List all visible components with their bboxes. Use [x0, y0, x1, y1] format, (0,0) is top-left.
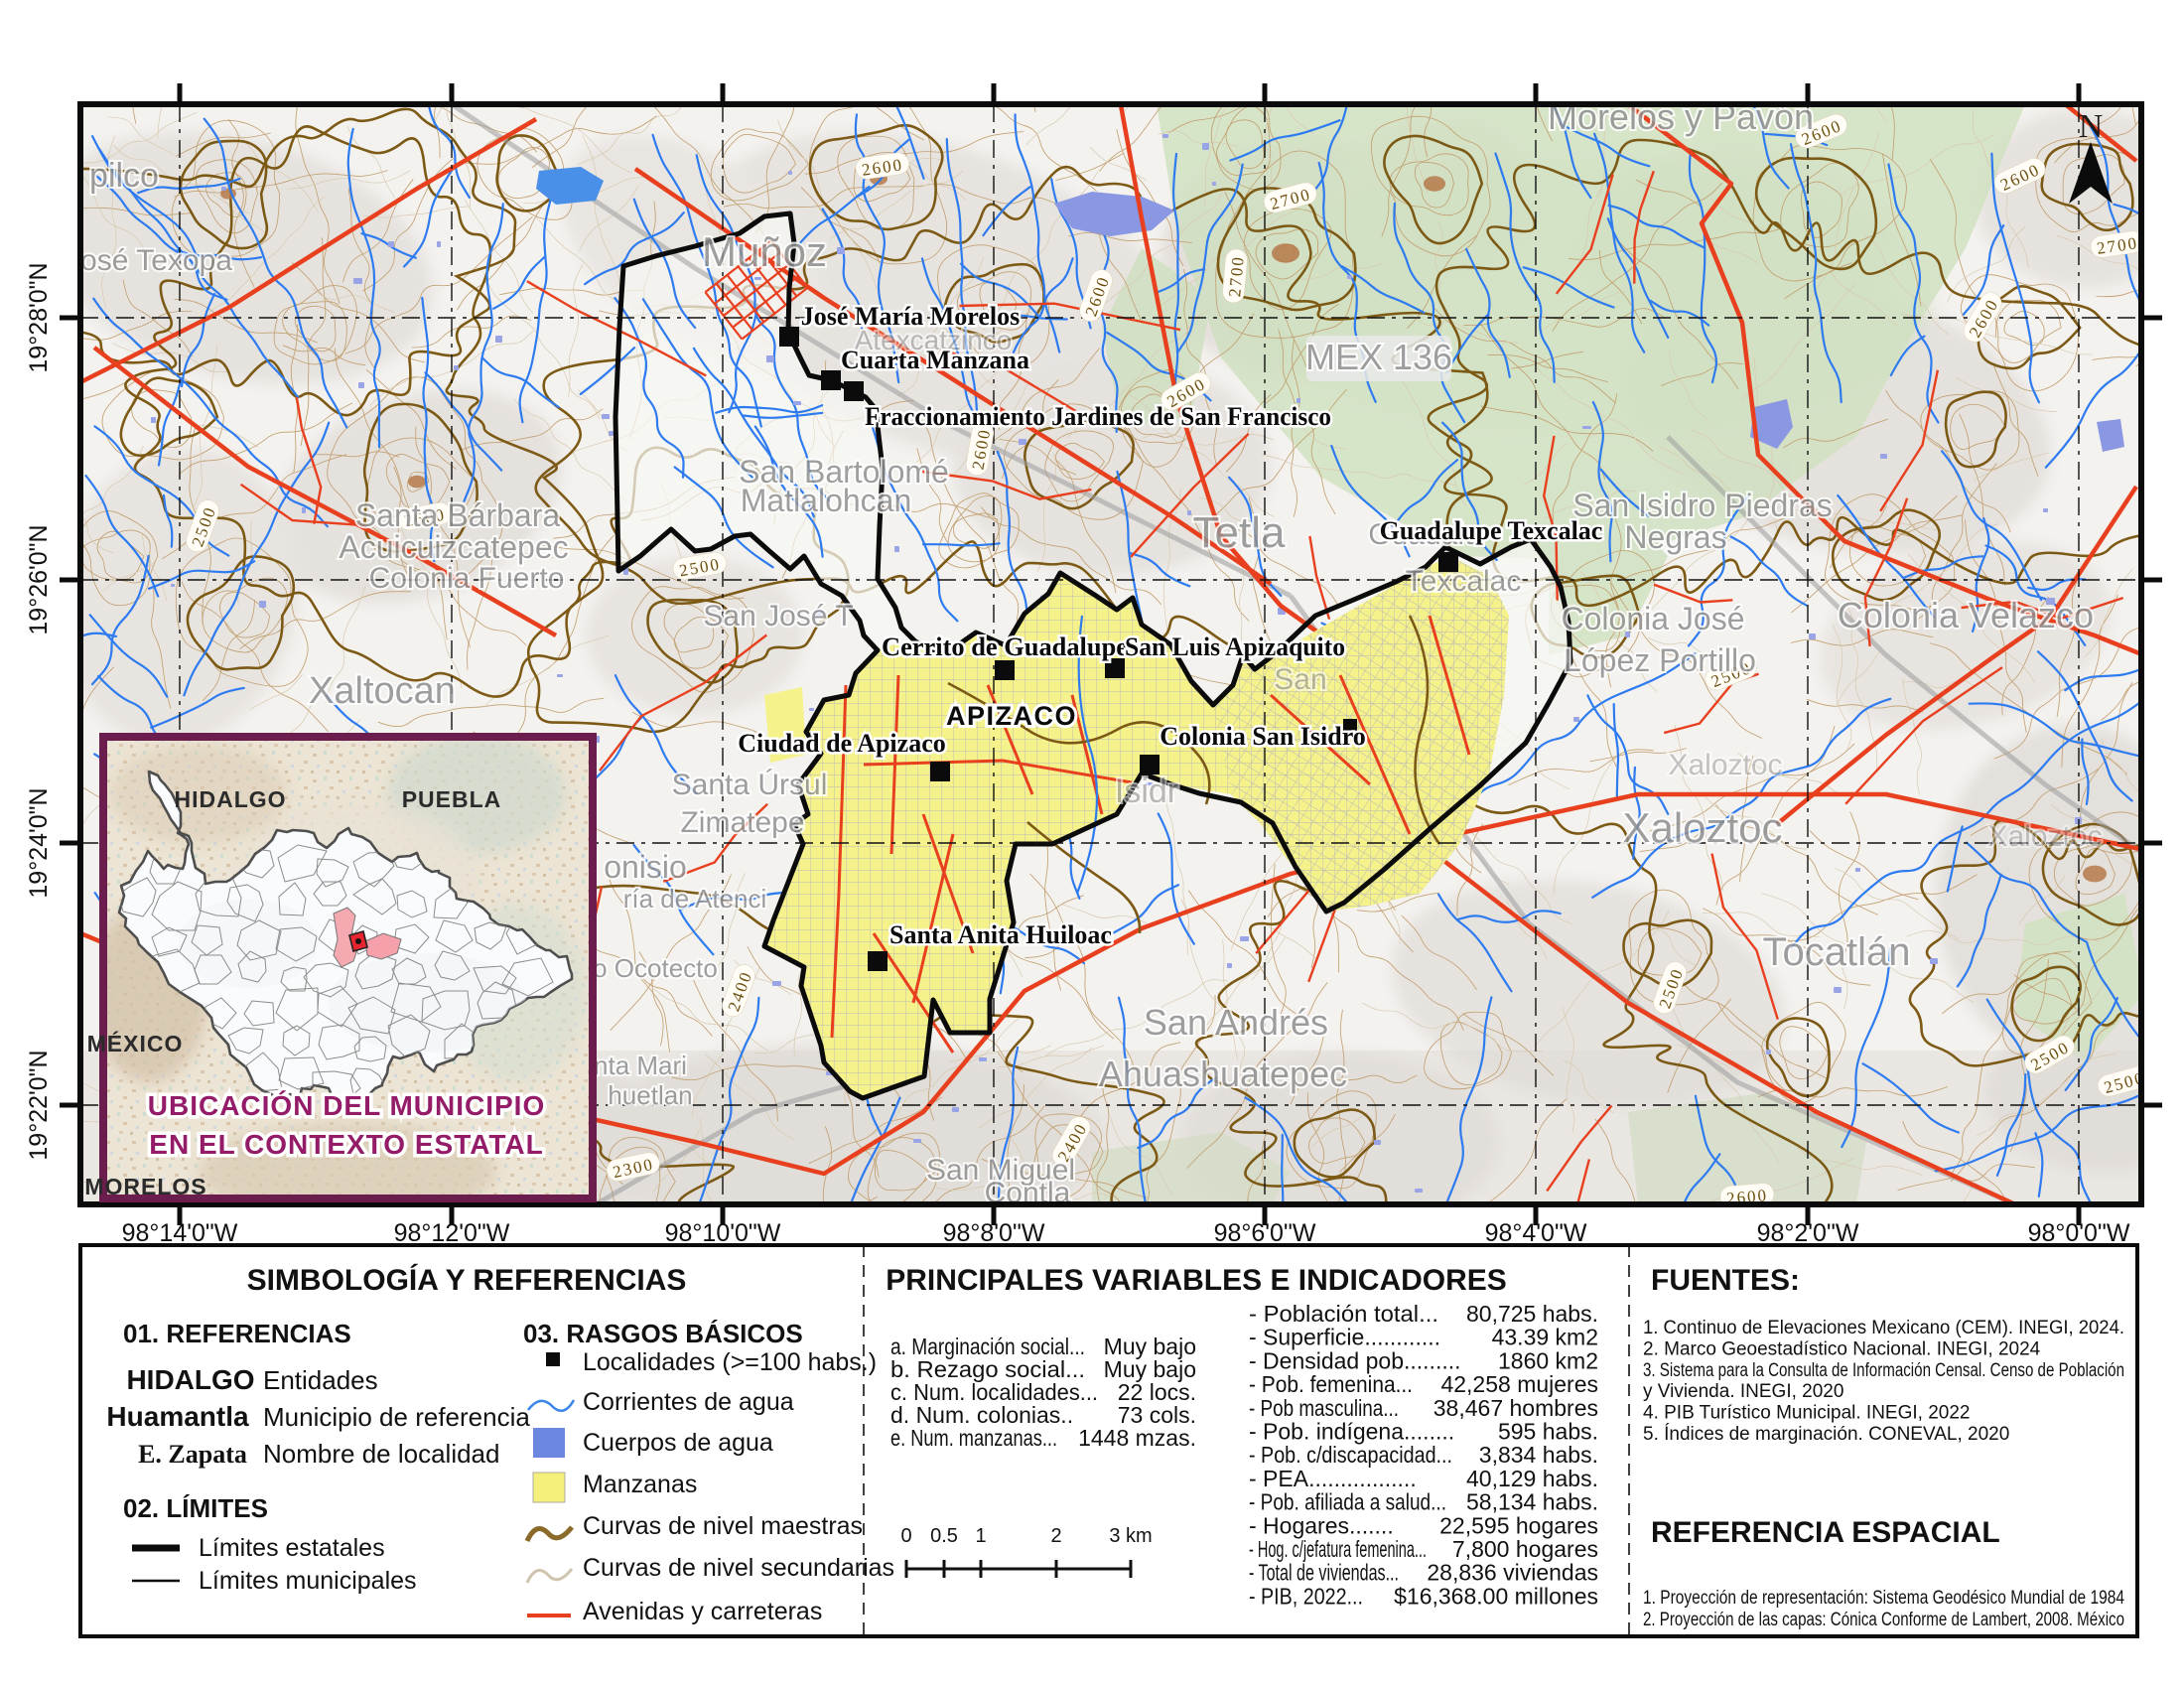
svg-text:19°26'0"N: 19°26'0"N	[25, 524, 53, 634]
svg-text:98°4'0"W: 98°4'0"W	[1485, 1219, 1587, 1247]
svg-text:5. Índices de marginación. CON: 5. Índices de marginación. CONEVAL, 2020	[1643, 1424, 2009, 1445]
svg-text:Curvas de nivel secundarias: Curvas de nivel secundarias	[583, 1554, 894, 1582]
svg-text:- PEA.................: - PEA.................	[1249, 1466, 1417, 1491]
svg-text:Ciudad de Apizaco: Ciudad de Apizaco	[738, 729, 946, 758]
svg-text:Límites municipales: Límites municipales	[199, 1567, 417, 1595]
svg-text:02. LÍMITES: 02. LÍMITES	[123, 1493, 268, 1523]
svg-text:Santa Úrsul: Santa Úrsul	[672, 769, 828, 801]
svg-text:nta Mari: nta Mari	[594, 1051, 687, 1080]
svg-text:López Portillo: López Portillo	[1564, 642, 1756, 678]
svg-text:Nombre de localidad: Nombre de localidad	[263, 1439, 499, 1469]
svg-text:PRINCIPALES VARIABLES E INDICA: PRINCIPALES VARIABLES E INDICADORES	[886, 1264, 1507, 1297]
svg-text:98°12'0"W: 98°12'0"W	[394, 1219, 510, 1247]
svg-text:Ahuashuatepec: Ahuashuatepec	[1099, 1054, 1347, 1094]
svg-text:98°8'0"W: 98°8'0"W	[943, 1219, 1045, 1247]
svg-text:Matlalohcan: Matlalohcan	[741, 483, 912, 518]
svg-text:Colonia Velazco: Colonia Velazco	[1838, 595, 2094, 635]
svg-text:- Pob. c/discapacidad...: - Pob. c/discapacidad...	[1249, 1442, 1452, 1468]
svg-text:- Pob. femenina...: - Pob. femenina...	[1249, 1371, 1413, 1397]
svg-text:San: San	[1274, 663, 1326, 696]
svg-text:3 km: 3 km	[1109, 1525, 1152, 1547]
svg-text:42,258 mujeres: 42,258 mujeres	[1440, 1371, 1598, 1397]
svg-text:22,595 hogares: 22,595 hogares	[1439, 1512, 1598, 1538]
svg-text:APIZACO: APIZACO	[946, 701, 1077, 731]
svg-text:Límites estatales: Límites estatales	[199, 1534, 385, 1562]
svg-text:98°10'0"W: 98°10'0"W	[665, 1219, 781, 1247]
svg-text:0.5: 0.5	[930, 1525, 958, 1547]
svg-text:E. Zapata: E. Zapata	[138, 1440, 247, 1469]
svg-text:EN EL CONTEXTO ESTATAL: EN EL CONTEXTO ESTATAL	[149, 1129, 543, 1160]
svg-text:4. PIB Turístico Municipal. IN: 4. PIB Turístico Municipal. INEGI, 2022	[1643, 1403, 1970, 1424]
svg-text:HIDALGO: HIDALGO	[126, 1364, 254, 1395]
svg-text:1860 km2: 1860 km2	[1498, 1347, 1598, 1373]
svg-text:98°0'0"W: 98°0'0"W	[2028, 1219, 2130, 1247]
svg-text:Xaltocan: Xaltocan	[309, 670, 456, 712]
svg-text:Huamantla: Huamantla	[106, 1401, 249, 1432]
svg-text:José Texopa: José Texopa	[66, 244, 232, 277]
svg-text:28,836 viviendas: 28,836 viviendas	[1427, 1560, 1598, 1586]
svg-text:San José T: San José T	[703, 600, 853, 633]
svg-text:19°28'0"N: 19°28'0"N	[25, 262, 53, 372]
svg-text:Fraccionamiento Jardines de Sa: Fraccionamiento Jardines de San Francisc…	[865, 402, 1331, 431]
svg-text:San Luis Apizaquito: San Luis Apizaquito	[1125, 633, 1345, 661]
svg-text:98°6'0"W: 98°6'0"W	[1214, 1219, 1316, 1247]
svg-text:2. Marco Geoestadístico Nacion: 2. Marco Geoestadístico Nacional. INEGI,…	[1643, 1338, 2041, 1359]
svg-text:onisio: onisio	[604, 849, 687, 885]
svg-text:Santa Bárbara: Santa Bárbara	[355, 497, 561, 533]
svg-text:Cerrito de Guadalupe: Cerrito de Guadalupe	[882, 633, 1128, 661]
svg-text:Acuicuizcatepec: Acuicuizcatepec	[339, 529, 568, 565]
svg-text:Muñoz: Muñoz	[702, 228, 827, 275]
svg-text:Corrientes de agua: Corrientes de agua	[583, 1388, 794, 1416]
svg-text:y Vivienda. INEGI, 2020: y Vivienda. INEGI, 2020	[1643, 1381, 1843, 1402]
svg-text:Xaloztoc: Xaloztoc	[1668, 749, 1782, 781]
svg-text:REFERENCIA ESPACIAL: REFERENCIA ESPACIAL	[1651, 1516, 2000, 1549]
svg-text:0: 0	[900, 1525, 911, 1547]
svg-text:HIDALGO: HIDALGO	[174, 786, 286, 812]
svg-text:Curvas de nivel maestras: Curvas de nivel maestras	[583, 1512, 863, 1540]
svg-text:- Pob masculina...: - Pob masculina...	[1249, 1395, 1399, 1421]
svg-text:Cuerpos de agua: Cuerpos de agua	[583, 1429, 773, 1457]
svg-text:Colonia José: Colonia José	[1562, 601, 1745, 636]
svg-text:N: N	[2079, 108, 2104, 145]
svg-text:Xaloztoc: Xaloztoc	[1987, 820, 2102, 853]
svg-text:pilco: pilco	[89, 157, 159, 195]
svg-text:58,134 habs.: 58,134 habs.	[1466, 1489, 1598, 1515]
svg-text:San Andrés: San Andrés	[1144, 1002, 1328, 1043]
svg-text:- Densidad pob.........: - Densidad pob.........	[1249, 1347, 1461, 1373]
svg-text:Xaloztoc: Xaloztoc	[1622, 804, 1782, 851]
svg-text:Santa Anita Huiloac: Santa Anita Huiloac	[889, 920, 1112, 949]
svg-text:- Total de viviendas...: - Total de viviendas...	[1249, 1560, 1399, 1586]
svg-text:7,800 hogares: 7,800 hogares	[1452, 1536, 1598, 1562]
svg-text:19°22'0"N: 19°22'0"N	[25, 1050, 53, 1160]
svg-text:Avenidas y carreteras: Avenidas y carreteras	[583, 1598, 822, 1625]
svg-text:Colonia Fuerto: Colonia Fuerto	[369, 562, 565, 595]
svg-text:1. Proyección de representació: 1. Proyección de representación: Sistema…	[1643, 1588, 2124, 1609]
svg-text:1: 1	[975, 1525, 986, 1547]
svg-text:- Hogares.......: - Hogares.......	[1249, 1512, 1394, 1538]
svg-text:- Superficie............: - Superficie............	[1249, 1325, 1440, 1350]
svg-text:Cuarta Manzana: Cuarta Manzana	[841, 346, 1029, 374]
svg-text:FUENTES:: FUENTES:	[1651, 1264, 1800, 1297]
svg-text:595 habs.: 595 habs.	[1498, 1419, 1598, 1445]
svg-text:José María Morelos: José María Morelos	[801, 302, 1020, 331]
svg-text:98°14'0"W: 98°14'0"W	[122, 1219, 238, 1247]
svg-text:Tetla: Tetla	[1193, 508, 1286, 557]
svg-text:MORELOS: MORELOS	[84, 1174, 206, 1199]
svg-text:Colonia San Isidro: Colonia San Isidro	[1160, 722, 1366, 751]
svg-text:01. REFERENCIAS: 01. REFERENCIAS	[123, 1319, 351, 1348]
svg-text:PUEBLA: PUEBLA	[402, 786, 502, 812]
svg-text:Municipio de referencia: Municipio de referencia	[263, 1402, 530, 1432]
svg-text:o Ocotecto: o Ocotecto	[593, 953, 718, 983]
svg-text:Localidades (>=100 habs.): Localidades (>=100 habs.)	[583, 1348, 877, 1376]
svg-text:Isidr: Isidr	[1115, 773, 1178, 810]
svg-text:- Población total...: - Población total...	[1249, 1301, 1438, 1327]
svg-text:e. Num. manzanas...: e. Num. manzanas...	[890, 1425, 1057, 1451]
svg-text:SIMBOLOGÍA Y REFERENCIAS: SIMBOLOGÍA Y REFERENCIAS	[247, 1263, 687, 1297]
svg-text:2700: 2700	[1225, 254, 1248, 297]
svg-text:San Isidro Piedras: San Isidro Piedras	[1572, 488, 1832, 523]
svg-text:- PIB, 2022...: - PIB, 2022...	[1249, 1583, 1363, 1609]
svg-text:MÉXICO: MÉXICO	[87, 1030, 184, 1056]
svg-text:1448 mzas.: 1448 mzas.	[1078, 1425, 1196, 1451]
svg-text:2: 2	[1050, 1525, 1061, 1547]
svg-text:- Pob. afiliada a salud...: - Pob. afiliada a salud...	[1249, 1489, 1446, 1515]
svg-text:Manzanas: Manzanas	[583, 1471, 697, 1498]
svg-text:Tocatlán: Tocatlán	[1763, 930, 1911, 974]
svg-text:$16,368.00 millones: $16,368.00 millones	[1394, 1583, 1598, 1609]
svg-text:Texcalac: Texcalac	[1406, 565, 1522, 598]
svg-text:huetlan: huetlan	[608, 1080, 692, 1110]
svg-text:19°24'0"N: 19°24'0"N	[25, 787, 53, 898]
svg-text:Guadalupe Texcalac: Guadalupe Texcalac	[1380, 516, 1603, 545]
svg-text:Entidades: Entidades	[263, 1365, 378, 1395]
svg-text:Negras: Negras	[1624, 519, 1726, 555]
svg-text:- Pob. indígena........: - Pob. indígena........	[1249, 1419, 1454, 1445]
svg-text:40,129 habs.: 40,129 habs.	[1466, 1466, 1598, 1491]
svg-text:- Hog. c/jefatura femenina...: - Hog. c/jefatura femenina...	[1249, 1536, 1427, 1562]
svg-text:2. Proyección de las capas: Có: 2. Proyección de las capas: Cónica Confo…	[1643, 1610, 2124, 1630]
svg-text:43.39 km2: 43.39 km2	[1492, 1325, 1598, 1350]
svg-text:1. Continuo de Elevaciones Mex: 1. Continuo de Elevaciones Mexicano (CEM…	[1643, 1318, 2124, 1338]
svg-text:03. RASGOS BÁSICOS: 03. RASGOS BÁSICOS	[523, 1319, 803, 1348]
svg-text:38,467 hombres: 38,467 hombres	[1433, 1395, 1598, 1421]
svg-text:80,725 habs.: 80,725 habs.	[1466, 1301, 1598, 1327]
svg-text:98°2'0"W: 98°2'0"W	[1757, 1219, 1859, 1247]
svg-text:3,834 habs.: 3,834 habs.	[1479, 1442, 1598, 1468]
svg-text:UBICACIÓN DEL MUNICIPIO: UBICACIÓN DEL MUNICIPIO	[148, 1090, 546, 1121]
svg-text:3. Sistema para la Consulta de: 3. Sistema para la Consulta de Informaci…	[1643, 1360, 2124, 1381]
svg-text:ría de Atenci: ría de Atenci	[623, 884, 767, 914]
svg-text:Zimatepe: Zimatepe	[680, 806, 804, 839]
svg-text:MEX 136: MEX 136	[1305, 337, 1452, 377]
